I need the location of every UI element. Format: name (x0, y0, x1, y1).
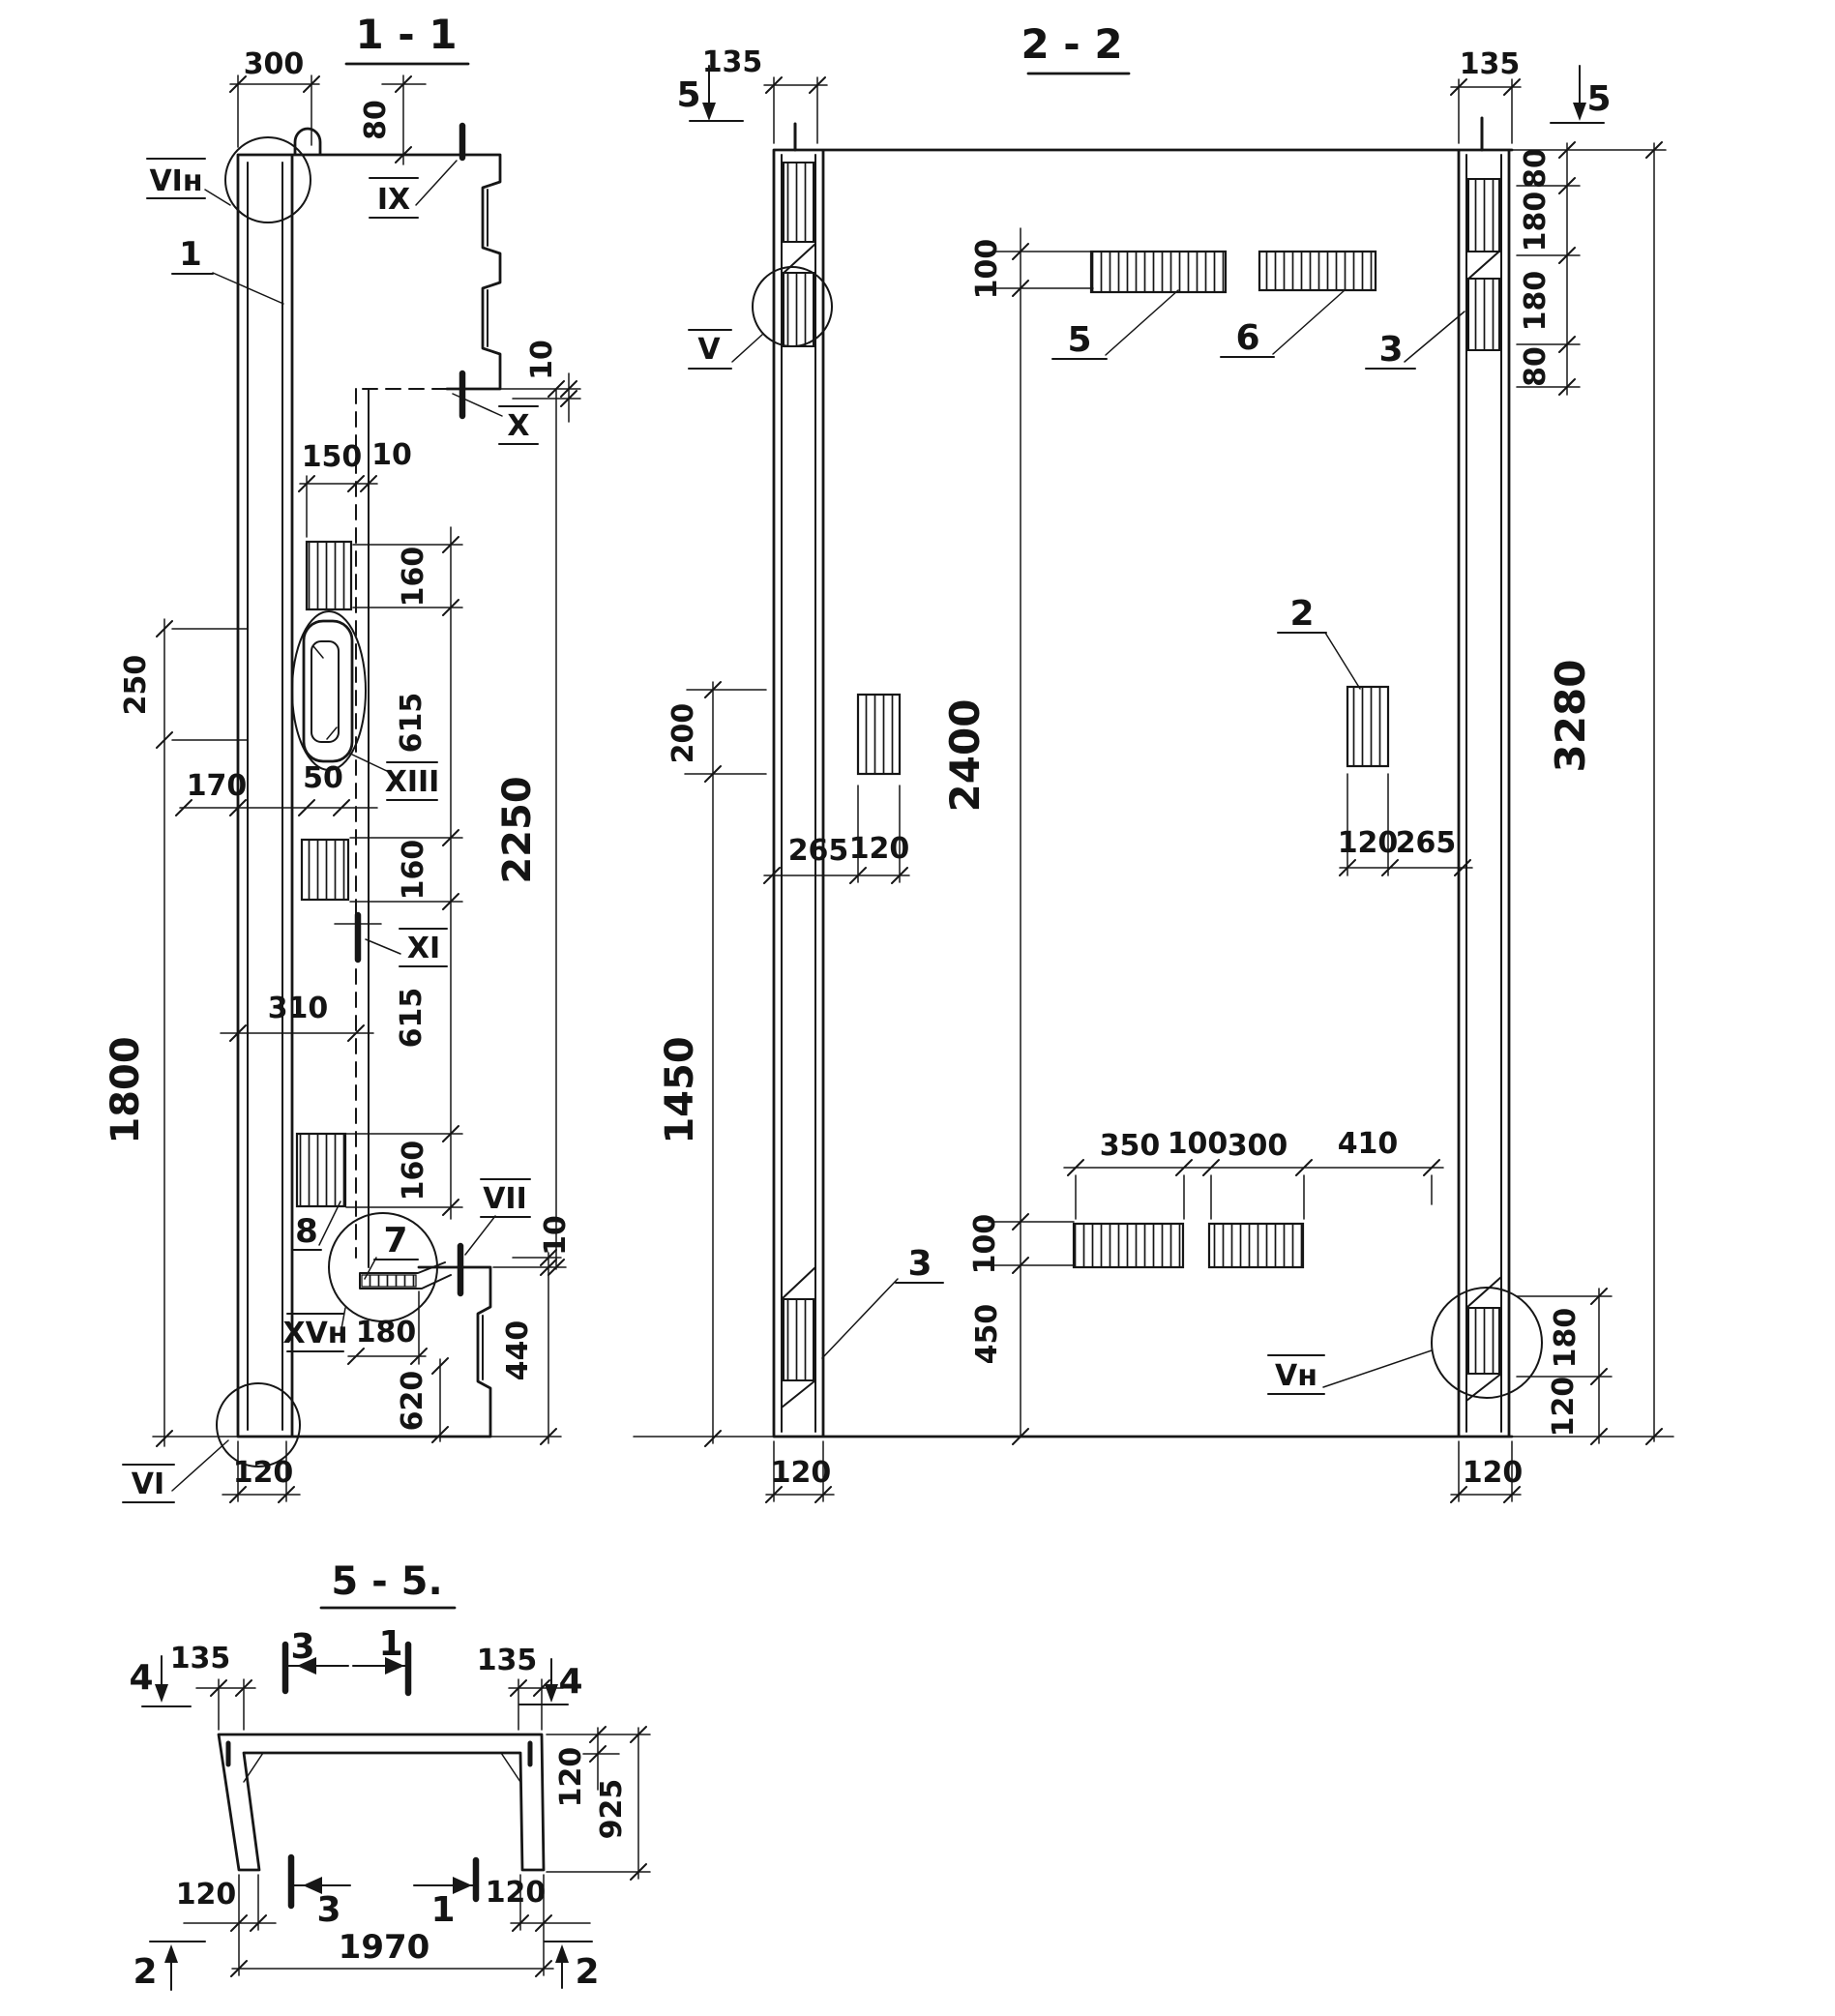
s55-haunch-lines (244, 1753, 520, 1782)
dim-135-left: 135 (702, 45, 763, 79)
dim-135-right: 135 (1460, 47, 1521, 81)
s22-right-rib-hatch-3 (1468, 1308, 1499, 1374)
dim-450: 450 (970, 1304, 1004, 1365)
s11-detail-vi-circle (217, 1383, 300, 1467)
dim-180: 180 (356, 1316, 417, 1349)
s22-right-rib-hatch-1 (1468, 179, 1499, 252)
dim-135-right-55: 135 (477, 1644, 538, 1677)
dim-120-bot-right-stack: 120 (1547, 1377, 1581, 1438)
s55-cut4-arrowheads (155, 1684, 558, 1703)
label-cut2-left: 2 (133, 1952, 157, 1992)
s22-plate-mid-left (858, 695, 900, 774)
dim-300-row: 300 (1228, 1129, 1288, 1163)
dim-925: 925 (595, 1779, 629, 1840)
section-5-5: 5 - 5. 135 135 120 925 120 120 1970 4 4 (129, 1559, 650, 1992)
s22-top-stubs (795, 118, 1482, 150)
dim-100-row: 100 (1168, 1127, 1228, 1161)
s22-right-rib-hatch-2 (1468, 279, 1499, 350)
dim-180a: 180 (1519, 192, 1553, 252)
dim-10-bot: 10 (539, 1215, 573, 1256)
s11-bracket-hatch (362, 1275, 416, 1287)
dim-80a: 80 (1519, 148, 1553, 189)
s11-label-rules (123, 159, 538, 1502)
s22-cut5-arrowheads (702, 103, 1586, 121)
label-cut4-left: 4 (129, 1658, 153, 1698)
dim-440: 440 (501, 1320, 535, 1381)
label-cut2-right: 2 (575, 1952, 599, 1992)
dim-50: 50 (303, 761, 343, 795)
dim-120-flange: 120 (554, 1747, 588, 1808)
label-item-1: 1 (179, 235, 202, 274)
label-xi: XI (407, 932, 440, 965)
dim-620: 620 (396, 1371, 429, 1432)
dim-1970: 1970 (339, 1928, 430, 1967)
s11-inner-lines (248, 163, 488, 1430)
s11-slot-inner (311, 641, 339, 742)
label-cut4-right: 4 (558, 1662, 582, 1702)
s22-plate-2 (1347, 687, 1388, 766)
dim-410: 410 (1338, 1127, 1399, 1161)
dim-120-leg-left: 120 (176, 1878, 237, 1912)
dim-350: 350 (1100, 1129, 1161, 1163)
s11-key-plate-2 (302, 840, 348, 900)
label-cut3-top: 3 (290, 1627, 314, 1667)
dim-180-bot: 180 (1549, 1308, 1583, 1369)
dim-2400: 2400 (941, 699, 989, 813)
label-vi: VI (132, 1468, 164, 1501)
section-1-1: 1 - 1 300 80 (104, 11, 580, 1502)
s11-key-plate-3 (297, 1134, 345, 1206)
dim-160c: 160 (397, 1141, 430, 1201)
s22-left-rib-hatch-1 (784, 163, 814, 242)
dim-150: 150 (302, 440, 363, 474)
dim-1450: 1450 (658, 1036, 702, 1143)
label-x: X (507, 409, 529, 443)
label-ix: IX (377, 183, 410, 217)
s55-channel-outline (219, 1734, 544, 1870)
label-vn: Vн (1275, 1359, 1317, 1393)
section-1-1-title: 1 - 1 (355, 11, 457, 58)
dim-160b: 160 (397, 840, 430, 901)
section-2-2-title: 2 - 2 (1021, 20, 1122, 68)
dim-300: 300 (244, 47, 305, 81)
s11-slot-shading (313, 646, 337, 739)
dim-100-bot: 100 (968, 1214, 1002, 1275)
dim-120-bot-left: 120 (771, 1456, 832, 1490)
label-cut1-top: 1 (378, 1624, 402, 1664)
label-vii: VII (483, 1182, 527, 1216)
label-item-3-top: 3 (1378, 330, 1403, 370)
section-5-5-title: 5 - 5. (331, 1559, 442, 1604)
label-item-2: 2 (1289, 594, 1314, 634)
dim-265-left: 265 (788, 834, 849, 868)
dim-120-bot-right: 120 (1463, 1456, 1524, 1490)
dim-250: 250 (119, 655, 153, 716)
dim-615a: 615 (395, 693, 429, 754)
dim-10-mid: 10 (371, 438, 412, 472)
s22-left-rib-hatch-3 (784, 1299, 814, 1380)
label-xiii: XIII (385, 765, 440, 799)
dim-120-mid-left: 120 (849, 832, 910, 866)
label-item-3-bot: 3 (907, 1244, 932, 1284)
label-xv: XVн (282, 1317, 347, 1350)
dim-200: 200 (666, 703, 700, 764)
dim-160a: 160 (397, 547, 430, 608)
s22-left-rib-hatch-2 (784, 273, 814, 346)
label-cut1-bot: 1 (430, 1890, 455, 1930)
label-vi-top: VIн (149, 164, 202, 198)
dim-80: 80 (359, 100, 393, 140)
dim-135-left-55: 135 (170, 1642, 231, 1675)
dim-80b: 80 (1519, 346, 1553, 387)
dim-170: 170 (187, 769, 248, 803)
label-cut5-left: 5 (676, 75, 700, 115)
dim-120-leg-right: 120 (486, 1876, 547, 1910)
dim-2250: 2250 (495, 776, 540, 883)
label-cut5-right: 5 (1586, 79, 1611, 119)
label-item-8: 8 (295, 1212, 318, 1251)
dim-615b: 615 (395, 988, 429, 1049)
label-item-7: 7 (383, 1221, 407, 1260)
s22-plate-5 (1091, 252, 1226, 292)
dim-265-right: 265 (1396, 826, 1457, 860)
label-item-5: 5 (1067, 320, 1091, 360)
s11-dashed-lines (356, 389, 447, 1258)
dim-10-top: 10 (525, 340, 559, 380)
label-v: V (697, 333, 721, 367)
dim-310: 310 (268, 992, 329, 1025)
label-cut3-bot: 3 (316, 1890, 340, 1930)
s11-leader-lines (172, 161, 502, 1491)
dim-180b: 180 (1519, 271, 1553, 332)
dim-3280: 3280 (1547, 660, 1594, 773)
s22-plate-6 (1259, 252, 1376, 290)
dim-1800: 1800 (104, 1036, 148, 1143)
section-2-2: 2 - 2 135 (634, 20, 1673, 1502)
drawing-sheet: 1 - 1 300 80 (0, 0, 1835, 2016)
panel-drawing: 1 - 1 300 80 (0, 0, 1835, 2016)
s11-key-plate-1 (307, 542, 351, 609)
dim-120-s11: 120 (233, 1456, 294, 1490)
dim-100-top: 100 (970, 239, 1004, 300)
dim-120-mid-right: 120 (1338, 826, 1399, 860)
label-item-6: 6 (1235, 318, 1259, 358)
s22-plate-bottom-1 (1074, 1224, 1183, 1267)
s22-plate-bottom-2 (1209, 1224, 1303, 1267)
